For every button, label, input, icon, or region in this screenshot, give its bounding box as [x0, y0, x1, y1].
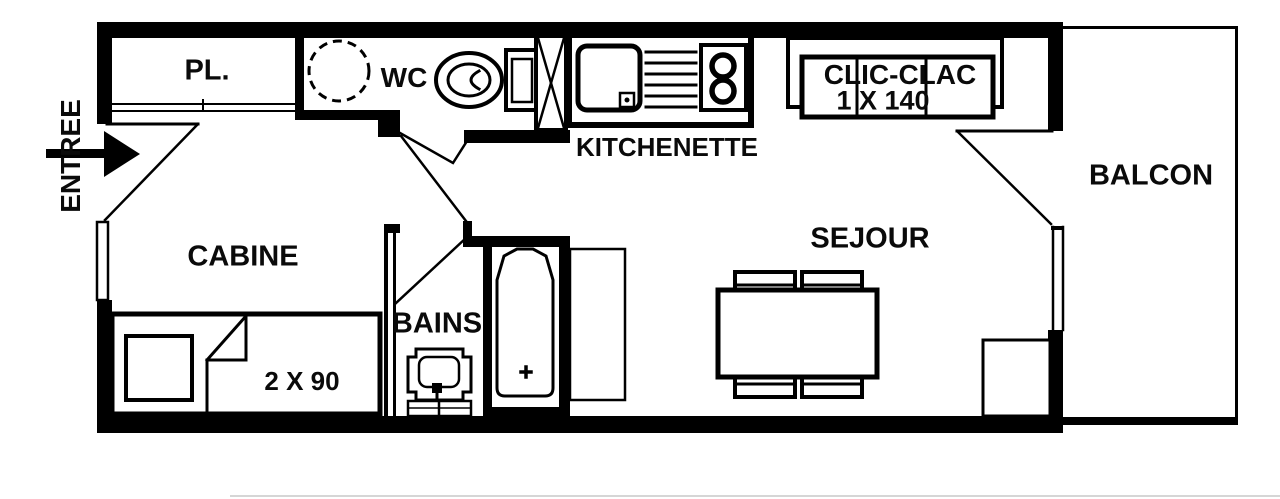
corner-cabinet	[983, 340, 1050, 416]
bains-wardrobe	[570, 249, 625, 400]
stove	[701, 45, 746, 110]
room-label-pl: PL.	[184, 57, 229, 86]
room-label-entree: ENTREE	[57, 99, 85, 213]
room-label-cabine: CABINE	[187, 243, 298, 272]
toilet	[436, 50, 538, 110]
kitchenette-unit	[569, 35, 751, 125]
room-label-bains: BAINS	[392, 310, 482, 339]
sejour-window	[1051, 226, 1064, 330]
bed	[112, 314, 380, 414]
dining-table	[718, 290, 877, 377]
kitchen-sink	[578, 46, 640, 110]
dining-chair	[735, 377, 795, 397]
bains-door	[395, 238, 466, 304]
entry-door	[105, 124, 198, 220]
duct-shaft	[536, 36, 566, 130]
balcony-outline	[1062, 26, 1238, 425]
scan-artifact-line	[230, 495, 1280, 497]
bathtub	[497, 249, 553, 396]
washbasin	[408, 349, 471, 416]
room-label-sejour: SEJOUR	[810, 225, 929, 254]
dining-chair	[802, 377, 862, 397]
room-label-wc: WC	[381, 64, 428, 92]
balcony-door	[957, 131, 1052, 224]
pillow	[126, 336, 192, 400]
label-bed-size: 2 X 90	[264, 368, 339, 394]
label-clic-clac-size: 1 X 140	[836, 88, 929, 115]
room-label-balcon: BALCON	[1089, 162, 1213, 191]
floor-plan: ENTREE PL. WC KITCHENETTE CLIC-CLAC 1 X …	[0, 0, 1280, 499]
room-label-kitchenette: KITCHENETTE	[576, 134, 758, 160]
entry-side-window	[97, 222, 108, 300]
pl-closet-front	[100, 100, 295, 111]
water-heater	[309, 41, 369, 101]
wc-door	[400, 133, 467, 221]
